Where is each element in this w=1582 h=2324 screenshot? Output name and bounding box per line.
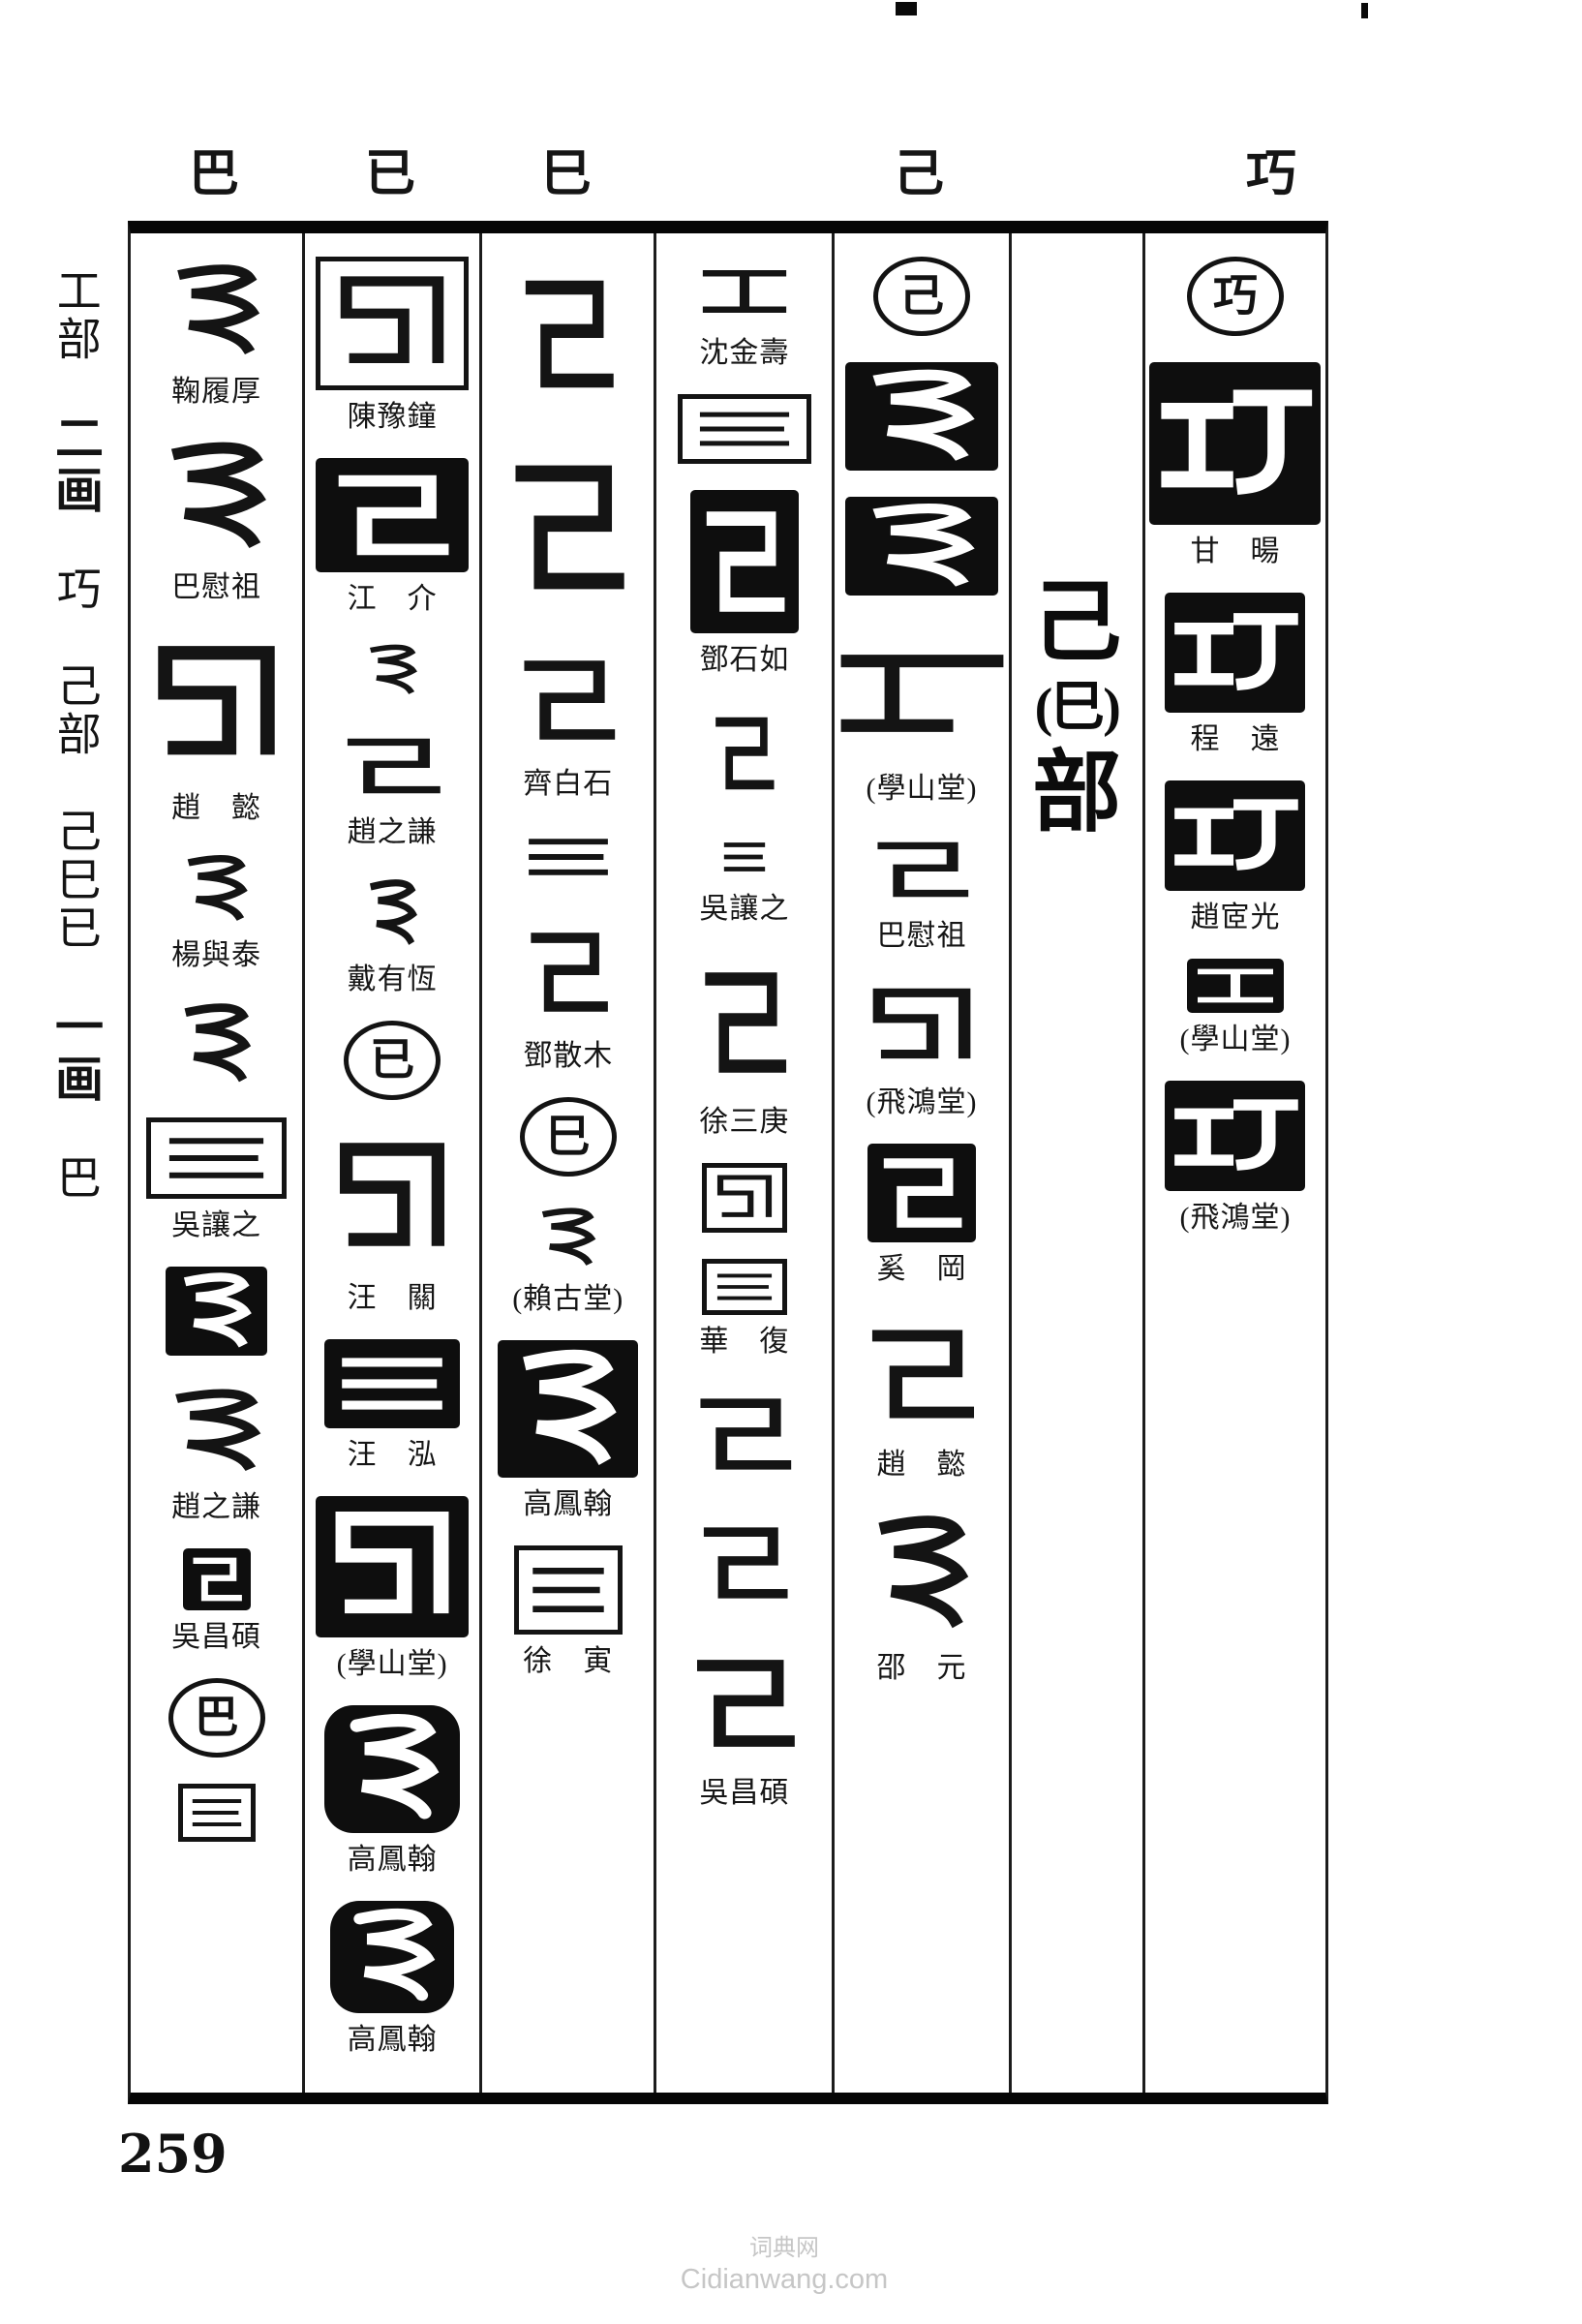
- seal-entry: (飛鴻堂): [1165, 1081, 1305, 1233]
- seal-caption: (飛鴻堂): [867, 1088, 978, 1117]
- seal-entry: 程 遠: [1165, 593, 1305, 754]
- seal-caption: 陳豫鐘: [348, 403, 438, 432]
- seal-entry: (學山堂): [838, 622, 1004, 804]
- seal-image: [845, 497, 998, 596]
- seal-entry: [685, 1512, 804, 1614]
- margin-label: 工部: [50, 267, 101, 364]
- watermark-line1: 词典网: [681, 2235, 888, 2263]
- seal-table: 鞠履厚巴慰祖趙 懿楊與泰吳讓之趙之謙吳昌碩巴陳豫鐘江 介趙之謙戴有恆已汪 關汪 …: [128, 221, 1328, 2104]
- seal-image: [144, 433, 289, 561]
- seal-entry: [166, 996, 267, 1091]
- seal-column: 己(學山堂)巴慰祖(飛鴻堂)奚 岡趙 懿邵 元: [835, 233, 1011, 2093]
- seal-entry: [166, 1267, 267, 1356]
- seal-image: [178, 1784, 256, 1842]
- seal-entry: [514, 825, 623, 889]
- seal-caption: 趙之謙: [348, 818, 438, 847]
- watermark-line2: Cidianwang.com: [681, 2263, 888, 2297]
- seal-image: [1149, 362, 1321, 525]
- seal-entry: (賴古堂): [512, 1203, 624, 1314]
- seal-entry: 汪 泓: [324, 1339, 460, 1470]
- seal-caption: 汪 泓: [348, 1441, 438, 1470]
- seal-caption: 奚 岡: [877, 1255, 967, 1284]
- seal-entry: [356, 640, 429, 700]
- seal-image: [514, 825, 623, 889]
- seal-caption: 高鳳翰: [348, 1846, 438, 1875]
- seal-entry: 巴: [168, 1678, 265, 1758]
- seal-image: [324, 1339, 460, 1428]
- seal-image: [702, 1163, 787, 1233]
- seal-entry: [703, 701, 785, 806]
- seal-image: [356, 873, 429, 953]
- seal-entry: 吳昌碩: [676, 1640, 813, 1808]
- seal-caption: (飛鴻堂): [1179, 1204, 1291, 1233]
- seal-image: [681, 1383, 808, 1485]
- seal-entry: [845, 497, 998, 596]
- seal-image: [1165, 1081, 1305, 1191]
- seal-entry: [492, 438, 645, 617]
- headword-badge: 巳: [520, 1097, 617, 1177]
- seal-image: [137, 628, 296, 781]
- seal-image: [498, 1340, 638, 1478]
- seal-image: [845, 362, 998, 471]
- headword-char: 已: [370, 1038, 414, 1083]
- seal-image: [690, 257, 799, 326]
- seal-entry: [702, 1163, 787, 1233]
- seal-entry: 趙 懿: [137, 628, 296, 823]
- seal-image: [676, 1640, 813, 1766]
- seal-entry: 鞠履厚: [154, 257, 280, 407]
- seal-caption: (賴古堂): [512, 1285, 624, 1314]
- seal-caption: 齊白石: [523, 770, 613, 799]
- seal-image: [151, 1382, 282, 1481]
- margin-label: 一画: [48, 1001, 103, 1106]
- seal-image: [702, 1259, 787, 1315]
- seal-entry: 高鳳翰: [324, 1705, 460, 1875]
- header-character: 巳: [541, 150, 592, 200]
- seal-caption: 程 遠: [1190, 725, 1280, 754]
- seal-caption: 趙 懿: [171, 794, 261, 823]
- seal-entry: 趙之謙: [327, 726, 458, 847]
- seal-image: [716, 832, 773, 882]
- seal-caption: 鞠履厚: [171, 378, 261, 407]
- headword-char: 巴: [195, 1696, 239, 1740]
- seal-entry: 齊白石: [504, 643, 632, 799]
- seal-image: [1187, 959, 1284, 1013]
- headword-badge: 巴: [168, 1678, 265, 1758]
- seal-entry: 甘 暘: [1149, 362, 1321, 566]
- seal-caption: 吳讓之: [699, 895, 789, 924]
- seal-column: 己(巳)部: [1012, 233, 1145, 2093]
- seal-image: [506, 257, 630, 412]
- seal-entry: (飛鴻堂): [855, 977, 989, 1117]
- seal-entry: [845, 362, 998, 471]
- scan-artifact: [896, 2, 917, 15]
- margin-index: 工部二画巧己部己巳已一画巴: [41, 267, 110, 1203]
- seal-caption: 巴慰祖: [877, 922, 967, 951]
- seal-caption: 華 復: [699, 1328, 789, 1357]
- seal-entry: 吳讓之: [146, 1117, 287, 1240]
- seal-entry: 巴慰祖: [144, 433, 289, 602]
- seal-entry: [681, 1383, 808, 1485]
- seal-caption: 鄧石如: [699, 646, 789, 675]
- seal-image: [853, 1506, 990, 1641]
- seal-entry: [506, 257, 630, 412]
- seal-image: [154, 257, 280, 365]
- section-label-main: 己: [1032, 576, 1121, 670]
- seal-caption: 江 介: [348, 585, 438, 614]
- seal-image: [703, 701, 785, 806]
- seal-entry: 已: [344, 1021, 441, 1100]
- seal-entry: 徐三庚: [687, 950, 802, 1137]
- seal-image: [166, 996, 267, 1091]
- seal-entry: 邵 元: [853, 1506, 990, 1683]
- seal-image: [146, 1117, 287, 1199]
- seal-entry: 江 介: [316, 458, 469, 614]
- seal-caption: 鄧散木: [523, 1042, 613, 1071]
- seal-entry: 巴慰祖: [858, 830, 986, 951]
- seal-column: 鞠履厚巴慰祖趙 懿楊與泰吳讓之趙之謙吳昌碩巴: [131, 233, 305, 2093]
- seal-entry: 高鳳翰: [498, 1340, 638, 1519]
- seal-entry: 趙 懿: [850, 1310, 993, 1480]
- seal-entry: 戴有恆: [348, 873, 438, 994]
- seal-column: 陳豫鐘江 介趙之謙戴有恆已汪 關汪 泓(學山堂)高鳳翰高鳳翰: [305, 233, 482, 2093]
- seal-entry: 鄧石如: [690, 490, 799, 675]
- seal-image: [166, 1267, 267, 1356]
- seal-image: [850, 1310, 993, 1438]
- seal-caption: 巴慰祖: [171, 573, 261, 602]
- seal-image: [1165, 780, 1305, 891]
- seal-image: [838, 622, 1006, 762]
- seal-image: [330, 1901, 454, 2013]
- seal-entry: 吳讓之: [699, 832, 789, 924]
- seal-entry: 汪 關: [320, 1126, 464, 1313]
- header-character: 巴: [189, 150, 239, 200]
- seal-caption: 戴有恆: [348, 965, 438, 994]
- header-character: 己: [894, 150, 944, 200]
- seal-image: [685, 1512, 804, 1614]
- seal-caption: (學山堂): [867, 775, 978, 804]
- seal-entry: 楊與泰: [170, 849, 262, 970]
- seal-image: [316, 257, 469, 390]
- seal-entry: 鄧散木: [514, 915, 623, 1071]
- seal-image: [356, 640, 429, 700]
- seal-image: [316, 458, 469, 572]
- watermark: 词典网 Cidianwang.com: [681, 2235, 888, 2297]
- seal-image: [183, 1548, 251, 1610]
- seal-image: [320, 1126, 464, 1271]
- seal-column: 齊白石鄧散木巳(賴古堂)高鳳翰徐 寅: [482, 233, 656, 2093]
- seal-caption: 趙宧光: [1190, 903, 1280, 933]
- seal-entry: 奚 岡: [867, 1144, 976, 1284]
- seal-caption: (學山堂): [337, 1650, 448, 1679]
- seal-caption: 吳昌碩: [171, 1623, 261, 1652]
- seal-image: [324, 1705, 460, 1833]
- seal-image: [855, 977, 989, 1076]
- seal-image: [514, 915, 623, 1029]
- seal-image: [690, 490, 799, 633]
- headword-badge: 己: [873, 257, 970, 336]
- seal-entry: 徐 寅: [514, 1545, 623, 1676]
- seal-entry: 己: [873, 257, 970, 336]
- seal-entry: 趙宧光: [1165, 780, 1305, 933]
- seal-caption: 汪 關: [348, 1284, 438, 1313]
- seal-caption: 高鳳翰: [348, 2026, 438, 2055]
- seal-entry: [678, 394, 811, 464]
- margin-label: 己部: [50, 662, 101, 759]
- margin-label: 巴: [50, 1154, 101, 1203]
- page-number: 259: [118, 2123, 228, 2185]
- seal-caption: 徐 寅: [523, 1647, 613, 1676]
- seal-entry: 巳: [520, 1097, 617, 1177]
- seal-caption: 吳昌碩: [699, 1779, 789, 1808]
- section-label: 己(巳)部: [1032, 576, 1121, 840]
- section-label-paren: (巳): [1035, 676, 1119, 741]
- headword-badge: 已: [344, 1021, 441, 1100]
- seal-column: 巧甘 暘程 遠趙宧光(學山堂)(飛鴻堂): [1145, 233, 1325, 2093]
- seal-caption: 趙 懿: [877, 1451, 967, 1480]
- seal-image: [504, 643, 632, 757]
- seal-image: [316, 1496, 469, 1637]
- seal-caption: 趙之謙: [171, 1493, 261, 1522]
- seal-image: [170, 849, 262, 929]
- scan-artifact: [1361, 3, 1368, 18]
- seal-image: [867, 1144, 976, 1242]
- seal-image: [492, 438, 645, 617]
- section-label-suffix: 部: [1032, 747, 1121, 841]
- headword-char: 己: [899, 274, 944, 319]
- margin-label: 二画: [48, 413, 103, 517]
- seal-entry: 巧: [1187, 257, 1284, 336]
- seal-entry: 陳豫鐘: [316, 257, 469, 432]
- seal-entry: 吳昌碩: [171, 1548, 261, 1652]
- seal-caption: 吳讓之: [171, 1211, 261, 1240]
- headword-badge: 巧: [1187, 257, 1284, 336]
- seal-image: [514, 1545, 623, 1635]
- seal-column: 沈金壽鄧石如吳讓之徐三庚華 復吳昌碩: [656, 233, 835, 2093]
- seal-entry: 華 復: [699, 1259, 789, 1357]
- seal-image: [687, 950, 802, 1095]
- margin-label: 巧: [50, 566, 101, 614]
- seal-entry: 高鳳翰: [330, 1901, 454, 2055]
- seal-entry: (學山堂): [1179, 959, 1291, 1055]
- seal-image: [1165, 593, 1305, 713]
- seal-image: [858, 830, 986, 909]
- seal-caption: 徐三庚: [699, 1108, 789, 1137]
- seal-caption: 沈金壽: [699, 339, 789, 368]
- seal-image: [327, 726, 458, 806]
- seal-entry: [178, 1784, 256, 1842]
- seal-image: [678, 394, 811, 464]
- seal-caption: 楊與泰: [171, 941, 261, 970]
- seal-caption: 邵 元: [877, 1654, 967, 1683]
- seal-entry: (學山堂): [316, 1496, 469, 1679]
- seal-caption: 甘 暘: [1190, 537, 1280, 566]
- margin-label: 己巳已: [50, 808, 101, 953]
- seal-entry: 沈金壽: [690, 257, 799, 368]
- headword-char: 巧: [1213, 274, 1258, 319]
- header-character: 已: [365, 150, 415, 200]
- seal-entry: 趙之謙: [151, 1382, 282, 1522]
- headword-char: 巳: [546, 1115, 591, 1159]
- seal-caption: (學山堂): [1179, 1025, 1291, 1055]
- seal-image: [527, 1203, 609, 1272]
- seal-caption: 高鳳翰: [523, 1490, 613, 1519]
- header-character: 巧: [1246, 150, 1296, 200]
